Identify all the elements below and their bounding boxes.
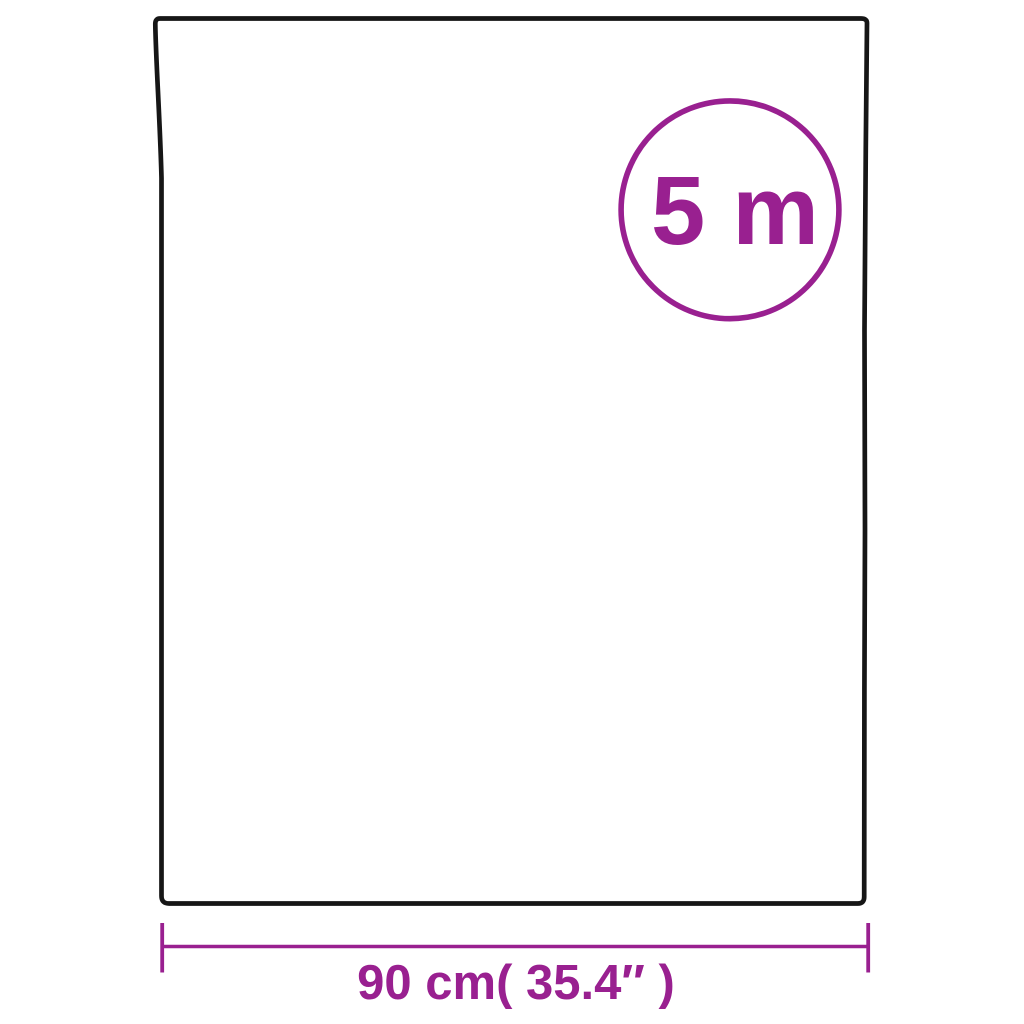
svg-text:5 m: 5 m <box>651 156 819 265</box>
svg-text:90 cm( 35.4″ ): 90 cm( 35.4″ ) <box>357 956 675 1010</box>
